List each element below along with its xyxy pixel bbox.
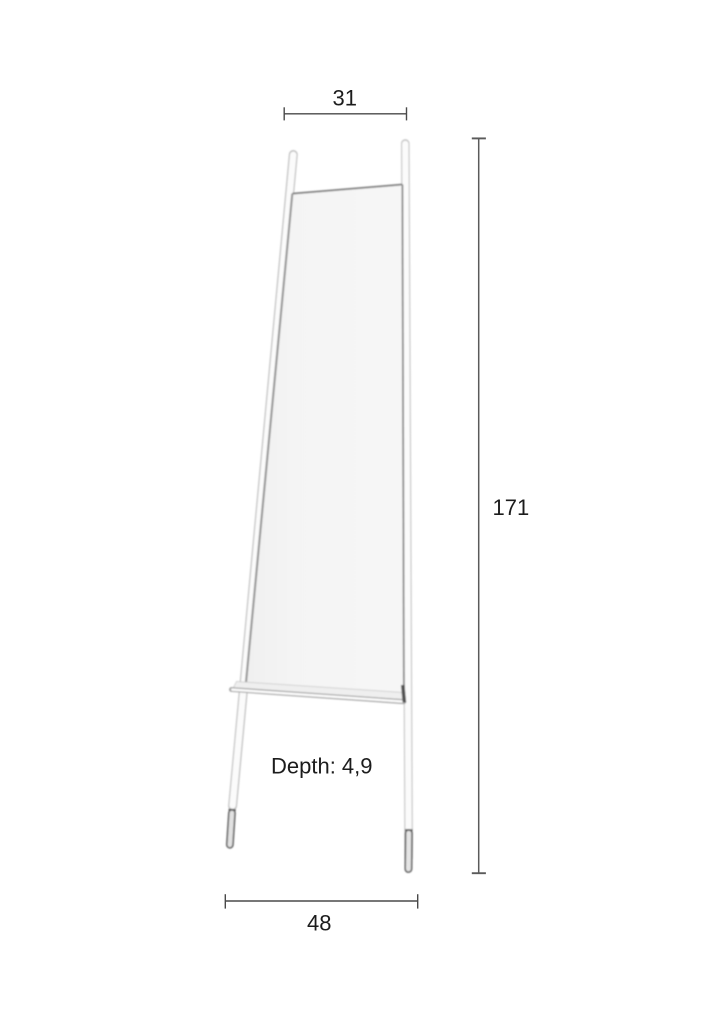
svg-text:48: 48 — [307, 911, 331, 936]
svg-text:31: 31 — [333, 86, 357, 111]
svg-text:Depth: 4,9: Depth: 4,9 — [271, 754, 373, 779]
svg-text:171: 171 — [493, 495, 530, 520]
